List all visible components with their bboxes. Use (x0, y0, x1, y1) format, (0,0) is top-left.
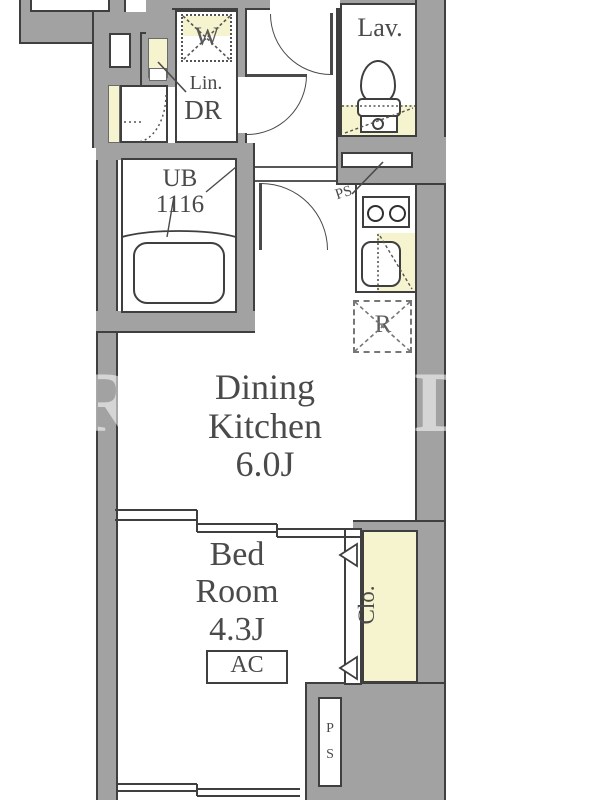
dressing-room-label: DR (178, 96, 228, 124)
room-divider-sliding-doors (115, 510, 360, 537)
bedroom-label: Bed Room 4.3J (137, 536, 337, 648)
kitchen-door-arc (261, 183, 328, 250)
wall-ub-east (235, 143, 255, 333)
wall-ub-bottom (96, 311, 255, 333)
bathtub-icon (133, 242, 225, 304)
entry-door-arc (270, 14, 331, 75)
kitchen-door-leaf (259, 183, 262, 250)
washer-label: W (190, 23, 224, 50)
washroom-door-gap (238, 77, 247, 133)
pipe-space-bottom-letter-p: P (326, 721, 334, 737)
bedroom-line1: Bed (137, 536, 337, 573)
sink-icon (361, 241, 401, 287)
toilet-faucet-icon (372, 118, 384, 130)
stove-burner-right-icon (389, 205, 406, 222)
floor-plan: P S (0, 0, 600, 800)
refrigerator-label: R (366, 312, 400, 338)
wall-notch (30, 0, 110, 12)
unit-bath-size-label: 1116 (134, 192, 226, 218)
unit-bath-label: UB (148, 166, 212, 192)
pipe-space-bottom-box: P S (318, 697, 342, 787)
lavatory-label: Lav. (348, 14, 412, 41)
washroom (120, 85, 168, 143)
wall-dr-top (172, 0, 270, 10)
stove-burner-left-icon (367, 205, 384, 222)
bedroom-window (118, 784, 300, 796)
watermark-letter-right: D (414, 352, 476, 452)
linen-label: Lin. (183, 73, 229, 94)
linen-shelf-lower (149, 68, 167, 81)
closet-label: Clo. (355, 577, 425, 633)
stove-icon (362, 196, 410, 228)
pipe-space-top-box (341, 152, 413, 168)
dining-kitchen-label: Dining Kitchen 6.0J (165, 368, 365, 484)
washroom-door-arc (247, 75, 307, 135)
washroom-counter (108, 85, 120, 143)
meter-box (109, 33, 131, 68)
wall-left-upper (92, 85, 108, 148)
dining-kitchen-line2: Kitchen (165, 407, 365, 446)
air-conditioner-label: AC (206, 653, 288, 678)
entry-door-leaf (330, 13, 333, 75)
pipe-space-bottom-letter-s: S (326, 747, 334, 763)
bedroom-size: 4.3J (137, 611, 337, 648)
bedroom-line2: Room (137, 573, 337, 610)
wall-left-main (96, 146, 118, 800)
watermark-letter-left: R (76, 352, 138, 452)
washroom-door-leaf (247, 74, 307, 77)
dining-kitchen-size: 6.0J (165, 445, 365, 484)
dining-kitchen-line1: Dining (165, 368, 365, 407)
